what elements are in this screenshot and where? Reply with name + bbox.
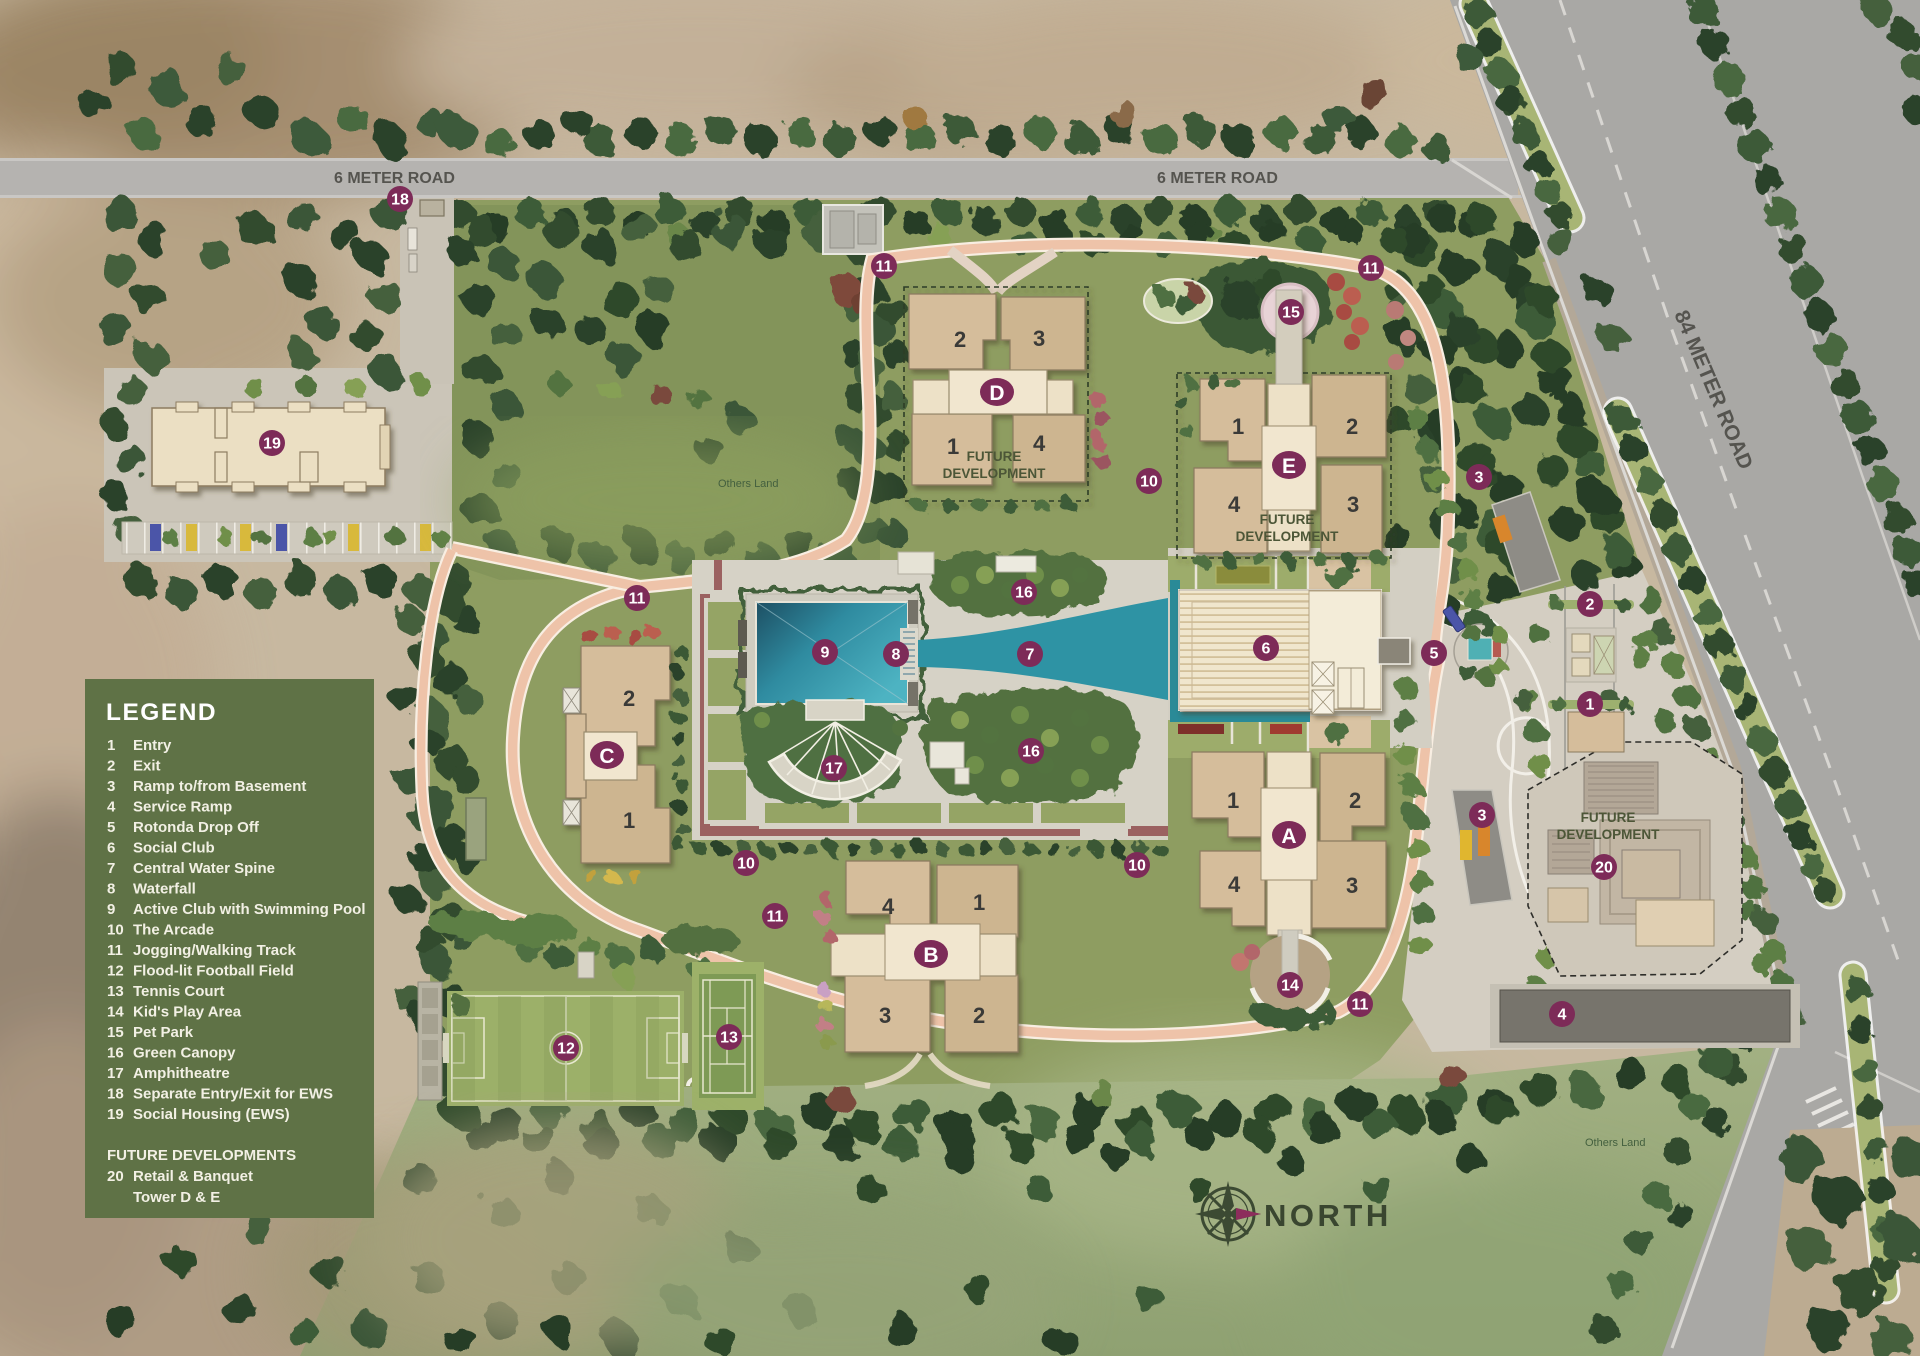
svg-text:7: 7	[1026, 647, 1035, 664]
svg-text:Central Water Spine: Central Water Spine	[133, 860, 275, 877]
svg-text:Ramp to/from Basement: Ramp to/from Basement	[133, 778, 306, 795]
svg-text:Amphitheatre: Amphitheatre	[133, 1065, 230, 1082]
svg-text:1: 1	[1227, 788, 1239, 813]
svg-text:11: 11	[107, 942, 123, 959]
svg-text:8: 8	[107, 881, 115, 898]
svg-text:3: 3	[1478, 808, 1487, 825]
svg-text:6: 6	[107, 840, 115, 857]
svg-text:20: 20	[1595, 860, 1613, 877]
svg-text:19: 19	[107, 1106, 124, 1123]
svg-text:10: 10	[1128, 858, 1146, 875]
svg-text:14: 14	[107, 1004, 124, 1021]
svg-text:2: 2	[623, 686, 635, 711]
svg-text:6 METER ROAD: 6 METER ROAD	[1157, 170, 1278, 187]
svg-text:18: 18	[391, 192, 409, 209]
svg-text:15: 15	[107, 1024, 124, 1041]
svg-text:Green Canopy: Green Canopy	[133, 1045, 236, 1062]
svg-text:2: 2	[1346, 414, 1358, 439]
svg-text:4: 4	[1228, 872, 1241, 897]
svg-text:11: 11	[1363, 261, 1380, 278]
svg-text:4: 4	[882, 894, 895, 919]
svg-text:Separate Entry/Exit for EWS: Separate Entry/Exit for EWS	[133, 1086, 333, 1103]
svg-text:4: 4	[1558, 1007, 1567, 1024]
svg-text:2: 2	[973, 1003, 985, 1028]
svg-text:DEVELOPMENT: DEVELOPMENT	[1557, 827, 1661, 842]
svg-text:16: 16	[1022, 744, 1040, 761]
svg-text:B: B	[923, 944, 938, 967]
svg-text:15: 15	[1282, 305, 1300, 322]
svg-text:3: 3	[1347, 492, 1359, 517]
svg-text:13: 13	[720, 1030, 738, 1047]
svg-text:10: 10	[737, 856, 755, 873]
svg-text:FUTURE: FUTURE	[1581, 810, 1636, 825]
svg-text:Social Housing (EWS): Social Housing (EWS)	[133, 1106, 290, 1123]
svg-text:Rotonda Drop Off: Rotonda Drop Off	[133, 819, 260, 836]
svg-text:DEVELOPMENT: DEVELOPMENT	[943, 466, 1047, 481]
svg-text:20: 20	[107, 1168, 124, 1185]
svg-text:9: 9	[821, 645, 830, 662]
svg-text:E: E	[1282, 455, 1296, 478]
svg-text:18: 18	[107, 1086, 124, 1103]
svg-text:7: 7	[107, 860, 115, 877]
svg-text:DEVELOPMENT: DEVELOPMENT	[1236, 529, 1340, 544]
svg-text:3: 3	[107, 778, 115, 795]
svg-text:1: 1	[1586, 697, 1595, 714]
svg-text:FUTURE: FUTURE	[967, 449, 1022, 464]
svg-text:16: 16	[1015, 585, 1033, 602]
svg-text:FUTURE: FUTURE	[1260, 512, 1315, 527]
svg-text:4: 4	[1228, 492, 1241, 517]
svg-text:Service Ramp: Service Ramp	[133, 799, 232, 816]
svg-text:2: 2	[1586, 597, 1595, 614]
svg-text:Social Club: Social Club	[133, 840, 215, 857]
svg-text:Active Club with Swimming Pool: Active Club with Swimming Pool	[133, 901, 366, 918]
svg-text:17: 17	[107, 1065, 124, 1082]
svg-text:2: 2	[1349, 788, 1361, 813]
svg-text:Others Land: Others Land	[718, 478, 779, 490]
svg-text:D: D	[989, 382, 1004, 405]
svg-text:3: 3	[1475, 470, 1484, 487]
svg-text:8: 8	[892, 647, 901, 664]
svg-text:11: 11	[629, 591, 646, 608]
svg-text:Waterfall: Waterfall	[133, 881, 196, 898]
svg-text:1: 1	[947, 434, 959, 459]
svg-text:11: 11	[1352, 997, 1369, 1014]
svg-text:6: 6	[1262, 641, 1271, 658]
svg-text:FUTURE DEVELOPMENTS: FUTURE DEVELOPMENTS	[107, 1147, 296, 1164]
svg-text:4: 4	[107, 799, 116, 816]
svg-text:19: 19	[263, 436, 281, 453]
svg-text:17: 17	[825, 761, 843, 778]
svg-text:10: 10	[1140, 474, 1158, 491]
svg-text:NORTH: NORTH	[1264, 1198, 1392, 1233]
svg-text:16: 16	[107, 1045, 124, 1062]
svg-text:A: A	[1281, 825, 1296, 848]
svg-text:LEGEND: LEGEND	[106, 699, 217, 726]
svg-text:1: 1	[623, 808, 635, 833]
svg-text:Jogging/Walking Track: Jogging/Walking Track	[133, 942, 296, 959]
svg-text:1: 1	[107, 737, 115, 754]
svg-text:Exit: Exit	[133, 758, 161, 775]
svg-text:4: 4	[1033, 431, 1046, 456]
svg-text:13: 13	[107, 983, 124, 1000]
svg-text:11: 11	[767, 909, 784, 926]
svg-text:5: 5	[1430, 646, 1439, 663]
svg-text:1: 1	[973, 890, 985, 915]
svg-text:3: 3	[879, 1003, 891, 1028]
svg-text:5: 5	[107, 819, 115, 836]
svg-text:Entry: Entry	[133, 737, 172, 754]
svg-text:11: 11	[876, 259, 893, 276]
svg-text:2: 2	[107, 758, 115, 775]
svg-text:1: 1	[1232, 414, 1244, 439]
svg-text:6 METER ROAD: 6 METER ROAD	[334, 170, 455, 187]
svg-text:3: 3	[1033, 326, 1045, 351]
svg-text:The Arcade: The Arcade	[133, 922, 214, 939]
svg-text:14: 14	[1281, 978, 1299, 995]
svg-text:Tower D & E: Tower D & E	[133, 1189, 220, 1206]
svg-text:9: 9	[107, 901, 115, 918]
svg-text:Flood-lit Football Field: Flood-lit Football Field	[133, 963, 294, 980]
svg-text:12: 12	[557, 1041, 575, 1058]
svg-text:Others Land: Others Land	[1585, 1137, 1646, 1149]
svg-text:2: 2	[954, 327, 966, 352]
svg-text:3: 3	[1346, 873, 1358, 898]
svg-text:Retail & Banquet: Retail & Banquet	[133, 1168, 253, 1185]
svg-text:Kid's Play Area: Kid's Play Area	[133, 1004, 242, 1021]
svg-text:Pet Park: Pet Park	[133, 1024, 194, 1041]
svg-text:10: 10	[107, 922, 124, 939]
svg-text:Tennis Court: Tennis Court	[133, 983, 224, 1000]
svg-text:12: 12	[107, 963, 124, 980]
svg-text:C: C	[599, 745, 614, 768]
